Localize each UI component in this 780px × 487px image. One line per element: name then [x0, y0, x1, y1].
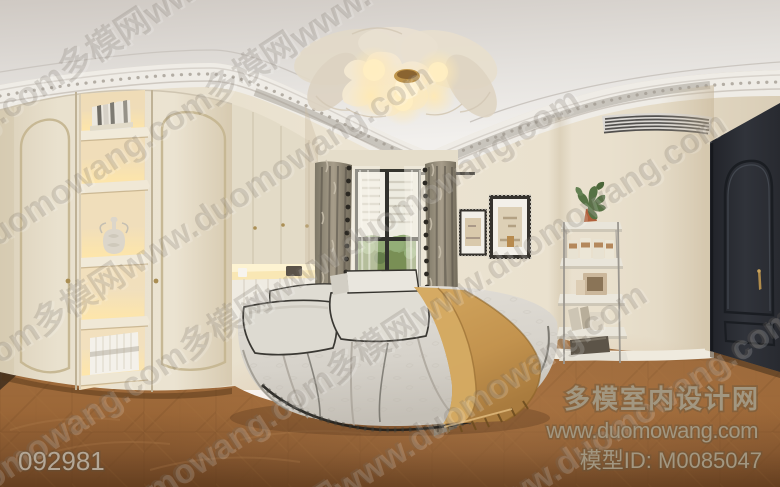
svg-text:092981: 092981 — [18, 446, 105, 476]
svg-text:模型ID: M0085047: 模型ID: M0085047 — [580, 448, 762, 473]
svg-text:www.duomowang.com: www.duomowang.com — [545, 418, 758, 443]
svg-text:多模室内设计网: 多模室内设计网 — [564, 384, 760, 414]
